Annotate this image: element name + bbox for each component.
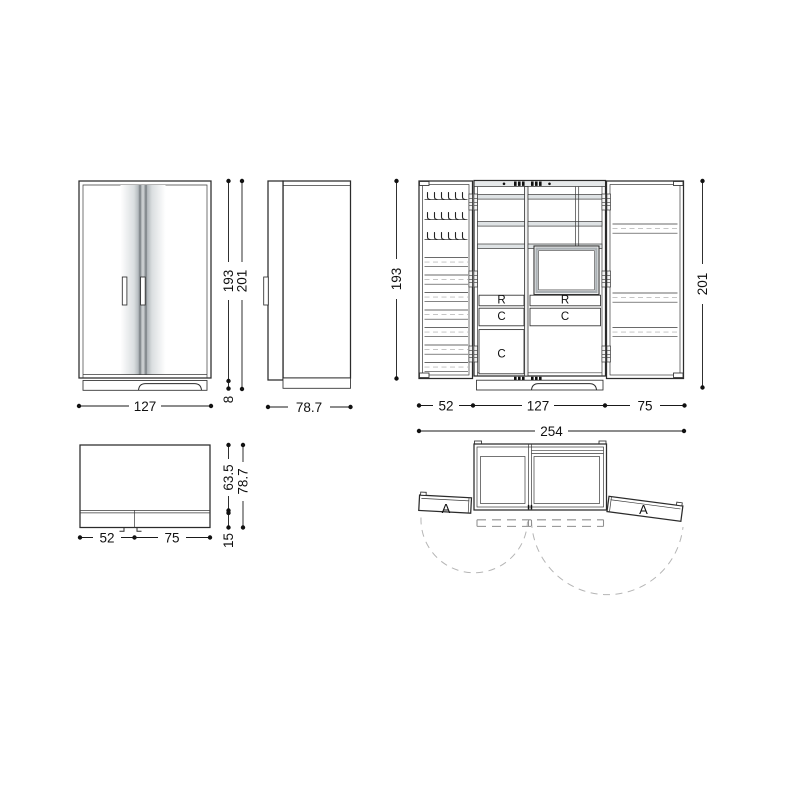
- top-view-open: A A: [419, 441, 684, 595]
- top-closed-handles: [120, 528, 142, 531]
- closed-dim-right-width: 75: [135, 531, 213, 546]
- open-left-door: [419, 181, 473, 379]
- hinge-icon: [469, 346, 478, 362]
- closed-dim-body-depth: 63.5: [221, 443, 236, 513]
- closed-body-depth-value: 63.5: [221, 464, 236, 490]
- top-view-closed: 52 75 63.5 78.7 15: [78, 443, 251, 548]
- side-depth-value: 78.7: [296, 400, 322, 415]
- door-label-left: A: [442, 501, 451, 516]
- side-dim-depth: 78.7: [266, 400, 353, 415]
- closed-right-width-value: 75: [164, 531, 179, 546]
- front-total-height-value: 201: [235, 270, 250, 293]
- front-view: 127 193 201 8: [77, 179, 250, 414]
- side-plinth: [283, 378, 351, 388]
- open-total-width-value: 254: [540, 424, 563, 439]
- front-left-door-handle: [122, 277, 127, 305]
- front-plinth: [83, 381, 207, 391]
- closed-left-width-value: 52: [99, 531, 114, 546]
- open-dim-body-height: 193: [389, 179, 404, 381]
- open-dim-total-width: 254: [417, 424, 686, 439]
- open-front-view: R R C C C 193: [389, 179, 710, 439]
- hinge-icon: [469, 271, 478, 287]
- closed-dim-total-depth: 78.7: [236, 443, 251, 530]
- open-body-height-value: 193: [389, 268, 404, 291]
- front-dim-plinth-height: 8: [221, 381, 236, 403]
- mirror-panel: [534, 246, 599, 295]
- technical-drawing-page: 127 193 201 8 78.7: [0, 0, 800, 800]
- closed-dim-door-depth: 15: [221, 511, 236, 548]
- open-center-body: R R C C C: [474, 181, 606, 391]
- front-plinth-height-value: 8: [221, 396, 236, 404]
- rail-label-left: R: [497, 295, 505, 307]
- door-swing-arc-left: [421, 518, 528, 573]
- closed-total-depth-value: 78.7: [236, 468, 251, 494]
- door-swing-arc-right: [532, 521, 684, 595]
- side-door-edge: [268, 181, 283, 380]
- closed-door-position-dashed: [477, 520, 604, 527]
- closed-door-depth-value: 15: [221, 533, 236, 548]
- front-right-door-handle: [141, 277, 146, 305]
- open-plinth: [477, 380, 604, 390]
- side-body-outline: [283, 181, 351, 378]
- open-total-height-value: 201: [695, 273, 710, 296]
- open-dim-widths: 52 127 75: [417, 399, 687, 414]
- open-left-width-value: 52: [438, 399, 453, 414]
- side-door-handle: [264, 277, 269, 305]
- wardrobe-technical-drawing: 127 193 201 8 78.7: [0, 0, 800, 800]
- door-label-right: A: [639, 502, 648, 517]
- open-center-width-value: 127: [527, 399, 550, 414]
- container-label-large: C: [497, 349, 505, 361]
- front-dim-width: 127: [77, 399, 213, 414]
- closed-dim-left-width: 52: [78, 531, 137, 546]
- front-dim-total-height: 201: [235, 179, 250, 391]
- open-dim-total-height: 201: [695, 179, 710, 390]
- rail-label-right: R: [561, 295, 569, 307]
- container-label-left: C: [497, 311, 505, 323]
- top-closed-outline: [80, 445, 210, 528]
- top-open-body: [474, 444, 607, 510]
- center-divider: [525, 187, 529, 377]
- open-right-width-value: 75: [637, 399, 652, 414]
- container-label-right: C: [561, 311, 569, 323]
- hinge-icon: [469, 194, 478, 210]
- side-view: 78.7: [264, 181, 353, 415]
- open-right-door: [607, 181, 684, 379]
- front-width-value: 127: [134, 399, 157, 414]
